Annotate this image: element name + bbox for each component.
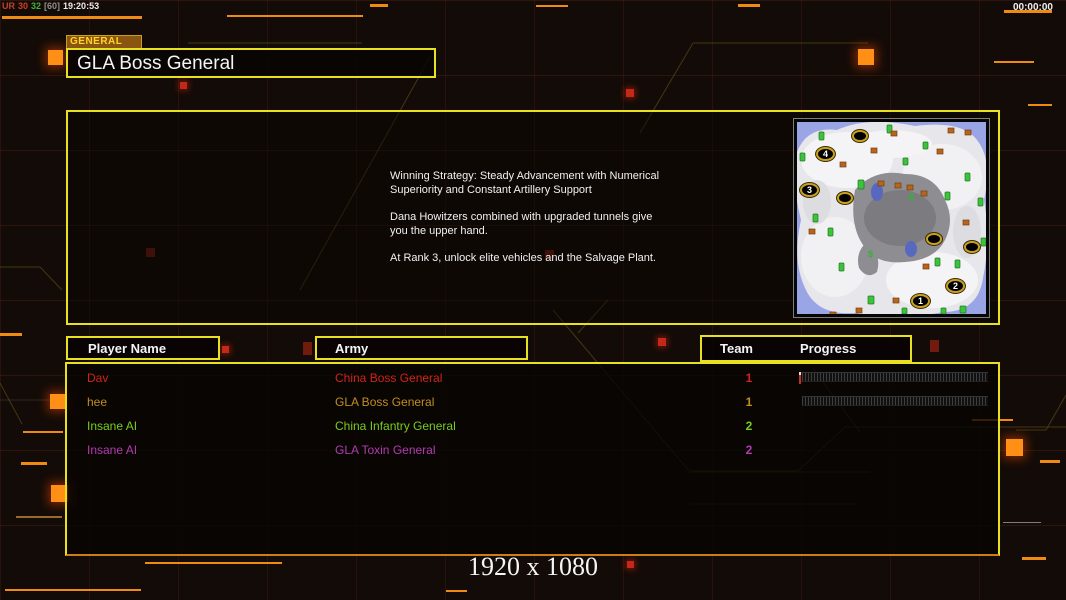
resolution-label: 1920 x 1080 xyxy=(468,552,598,582)
deco-square-red xyxy=(627,561,634,568)
fps-label: UR xyxy=(2,1,15,11)
map-start-position: 3 xyxy=(800,183,819,197)
svg-text:$: $ xyxy=(868,249,873,259)
player-name: Insane AI xyxy=(87,438,137,462)
match-timer: 00:00:00 xyxy=(1013,2,1053,13)
deco-dash xyxy=(227,15,363,17)
deco-square-red xyxy=(930,340,939,352)
player-team: 1 xyxy=(739,390,759,414)
deco-dash xyxy=(2,16,142,19)
start-position-number: 2 xyxy=(953,281,958,291)
deco-dash xyxy=(5,589,141,591)
player-list-panel: Dav China Boss General 1 hee GLA Boss Ge… xyxy=(65,362,1000,556)
map-start-position-empty xyxy=(964,241,980,253)
deco-square-red xyxy=(658,338,666,346)
player-team: 2 xyxy=(739,414,759,438)
header-label: Player Name xyxy=(88,338,166,359)
player-name: Dav xyxy=(87,366,108,390)
map-start-position: 1 xyxy=(911,294,930,308)
progress-tick xyxy=(799,372,801,384)
svg-text:$: $ xyxy=(909,192,914,202)
strategy-paragraph: Winning Strategy: Steady Advancement wit… xyxy=(390,169,720,197)
strategy-paragraph: At Rank 3, unlock elite vehicles and the… xyxy=(390,251,720,265)
deco-square xyxy=(858,49,874,65)
header-label-team: Team xyxy=(720,337,753,361)
map-preview: $ $ 4 3 2 1 xyxy=(793,118,990,318)
player-team: 1 xyxy=(739,366,759,390)
deco-dash xyxy=(23,431,63,433)
column-header-army: Army xyxy=(315,336,528,360)
player-name: Insane AI xyxy=(87,414,137,438)
deco-dash xyxy=(370,4,388,7)
deco-dash xyxy=(16,516,62,518)
player-row: Insane AI GLA Toxin General 2 xyxy=(67,438,998,462)
loading-progress-bar xyxy=(802,396,988,406)
deco-dash xyxy=(994,61,1034,63)
deco-dash xyxy=(21,462,47,465)
general-tab-label: GENERAL xyxy=(66,35,142,48)
strategy-text: Winning Strategy: Steady Advancement wit… xyxy=(390,169,720,278)
strategy-paragraph: Dana Howitzers combined with upgraded tu… xyxy=(390,210,720,238)
deco-dash xyxy=(446,590,467,592)
header-label: Army xyxy=(335,338,368,359)
column-header-team-progress: Team Progress xyxy=(700,335,912,362)
map-start-position-empty xyxy=(852,130,868,142)
map-start-position-empty xyxy=(837,192,853,204)
map-start-position: 4 xyxy=(816,147,835,161)
player-team: 2 xyxy=(739,438,759,462)
loading-progress-bar xyxy=(799,372,988,382)
loading-screen: UR3032[60]19:20:53 00:00:00 GENERAL GLA … xyxy=(0,0,1066,600)
deco-square-red xyxy=(303,342,312,355)
player-army: GLA Boss General xyxy=(335,390,434,414)
deco-dash xyxy=(1003,522,1041,523)
player-row: Insane AI China Infantry General 2 xyxy=(67,414,998,438)
column-header-player-name: Player Name xyxy=(66,336,220,360)
start-position-number: 3 xyxy=(807,185,812,195)
deco-dash xyxy=(0,333,22,336)
player-row: Dav China Boss General 1 xyxy=(67,366,998,390)
player-army: China Infantry General xyxy=(335,414,456,438)
debug-clock: 19:20:53 xyxy=(63,1,99,11)
start-position-number: 1 xyxy=(918,296,923,306)
deco-square xyxy=(50,394,65,409)
deco-square xyxy=(48,50,63,65)
map-start-position: 2 xyxy=(946,279,965,293)
map-start-position-empty xyxy=(926,233,942,245)
player-row: hee GLA Boss General 1 xyxy=(67,390,998,414)
deco-dash xyxy=(738,4,760,7)
deco-square-red xyxy=(626,89,634,97)
deco-square xyxy=(1006,439,1023,456)
deco-dash xyxy=(536,5,568,7)
deco-dash xyxy=(1040,460,1060,463)
deco-square-red xyxy=(180,82,187,89)
debug-fps-counter: UR3032[60]19:20:53 xyxy=(2,1,102,11)
deco-dash xyxy=(145,562,282,564)
map-terrain: $ $ 4 3 2 1 xyxy=(797,122,986,314)
page-title: GLA Boss General xyxy=(66,48,436,78)
player-name: hee xyxy=(87,390,107,414)
player-army: GLA Toxin General xyxy=(335,438,436,462)
header-label-progress: Progress xyxy=(800,337,856,361)
deco-dash xyxy=(1022,557,1046,560)
deco-dash xyxy=(1028,104,1052,106)
start-position-number: 4 xyxy=(823,149,828,159)
player-army: China Boss General xyxy=(335,366,442,390)
deco-square-red xyxy=(222,346,229,353)
